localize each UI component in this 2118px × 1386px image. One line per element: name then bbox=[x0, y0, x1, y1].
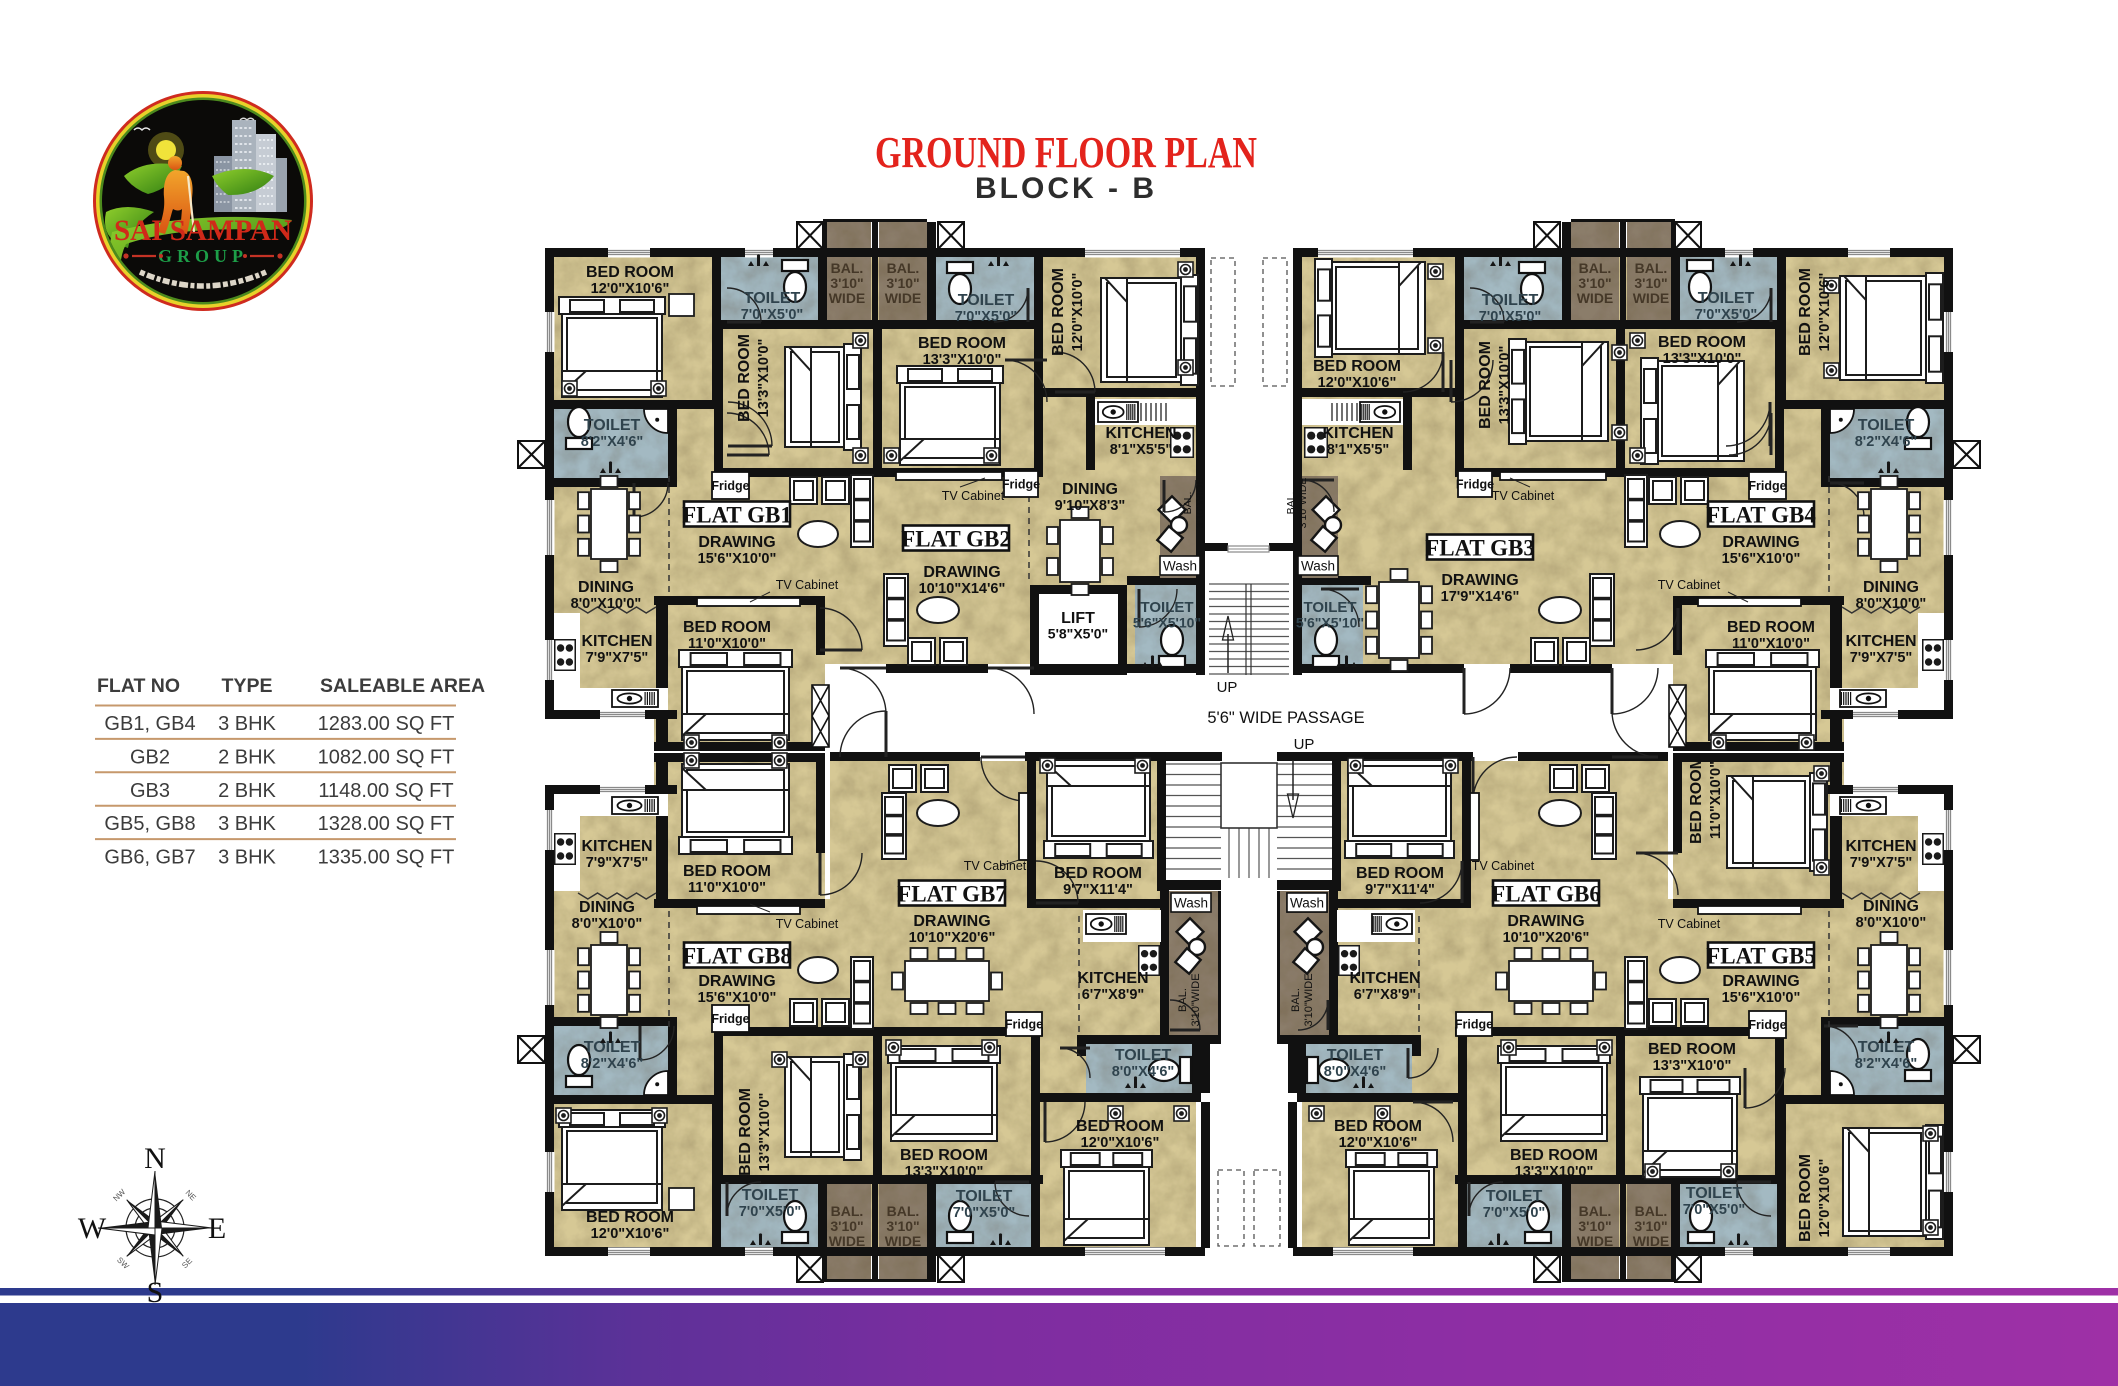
svg-text:S: S bbox=[147, 1276, 164, 1309]
svg-text:BAL.: BAL. bbox=[1579, 260, 1612, 276]
svg-text:7'0"X5'0": 7'0"X5'0" bbox=[741, 307, 804, 323]
svg-text:3'10": 3'10" bbox=[1634, 275, 1667, 291]
svg-text:TV Cabinet: TV Cabinet bbox=[776, 578, 839, 592]
svg-text:BAL.: BAL. bbox=[831, 260, 864, 276]
svg-text:11'0"X10'0": 11'0"X10'0" bbox=[688, 636, 766, 652]
svg-text:TOILET: TOILET bbox=[744, 290, 801, 307]
svg-text:10'10"X20'6": 10'10"X20'6" bbox=[1503, 930, 1590, 946]
svg-text:WIDE: WIDE bbox=[1633, 1233, 1670, 1249]
svg-text:8'0"X4'6": 8'0"X4'6" bbox=[1112, 1064, 1175, 1080]
svg-text:Fridge: Fridge bbox=[1002, 478, 1040, 492]
svg-text:13'3"X10'0": 13'3"X10'0" bbox=[1663, 351, 1742, 367]
svg-text:3'10": 3'10" bbox=[830, 275, 863, 291]
svg-text:WIDE: WIDE bbox=[885, 1233, 922, 1249]
svg-text:TOILET: TOILET bbox=[1858, 1039, 1915, 1056]
svg-text:WIDE: WIDE bbox=[1577, 290, 1614, 306]
svg-text:3 BHK: 3 BHK bbox=[218, 847, 276, 869]
svg-text:7'0"X5'0": 7'0"X5'0" bbox=[1695, 307, 1758, 323]
svg-text:6'7"X8'9": 6'7"X8'9" bbox=[1082, 987, 1145, 1003]
svg-text:W: W bbox=[78, 1212, 107, 1245]
svg-text:5'6"X5'10": 5'6"X5'10" bbox=[1296, 615, 1364, 631]
svg-text:5'6" WIDE PASSAGE: 5'6" WIDE PASSAGE bbox=[1207, 709, 1364, 727]
svg-text:KITCHEN: KITCHEN bbox=[1845, 633, 1916, 650]
svg-text:5'8"X5'0": 5'8"X5'0" bbox=[1048, 626, 1108, 642]
svg-text:13'3"X10'0": 13'3"X10'0" bbox=[1497, 346, 1513, 425]
svg-text:17'9"X14'6": 17'9"X14'6" bbox=[1441, 589, 1520, 605]
svg-text:TV Cabinet: TV Cabinet bbox=[1472, 859, 1535, 873]
svg-text:BED ROOM: BED ROOM bbox=[736, 334, 753, 422]
svg-text:8'0"X10'0": 8'0"X10'0" bbox=[1856, 596, 1927, 612]
svg-text:BED ROOM: BED ROOM bbox=[1658, 334, 1746, 351]
svg-text:WIDE: WIDE bbox=[885, 290, 922, 306]
svg-text:8'1"X5'5": 8'1"X5'5" bbox=[1327, 442, 1390, 458]
svg-text:2 BHK: 2 BHK bbox=[218, 746, 276, 768]
svg-text:7'9"X7'5": 7'9"X7'5" bbox=[1850, 650, 1913, 666]
svg-text:7'9"X7'5": 7'9"X7'5" bbox=[1850, 855, 1913, 871]
svg-text:10'10"X14'6": 10'10"X14'6" bbox=[919, 581, 1006, 597]
svg-text:DINING: DINING bbox=[579, 899, 635, 916]
svg-text:GROUP: GROUP bbox=[158, 246, 248, 266]
svg-text:11'0"X10'0": 11'0"X10'0" bbox=[1708, 761, 1724, 839]
svg-text:BED ROOM: BED ROOM bbox=[683, 863, 771, 880]
svg-text:3'10": 3'10" bbox=[830, 1218, 863, 1234]
svg-text:TV Cabinet: TV Cabinet bbox=[1658, 578, 1721, 592]
svg-text:3'10"WIDE: 3'10"WIDE bbox=[1297, 478, 1309, 529]
svg-text:7'0"X5'0": 7'0"X5'0" bbox=[1683, 1202, 1746, 1218]
svg-text:2 BHK: 2 BHK bbox=[218, 780, 276, 802]
svg-text:8'0"X10'0": 8'0"X10'0" bbox=[1856, 915, 1927, 931]
svg-text:GB3: GB3 bbox=[130, 780, 170, 802]
svg-text:8'0"X10'0": 8'0"X10'0" bbox=[572, 916, 643, 932]
svg-text:TOILET: TOILET bbox=[1482, 292, 1539, 309]
svg-text:TOILET: TOILET bbox=[1303, 599, 1356, 616]
svg-text:FLAT GB4: FLAT GB4 bbox=[1706, 503, 1816, 528]
svg-text:7'9"X7'5": 7'9"X7'5" bbox=[586, 855, 649, 871]
svg-text:FLAT GB2: FLAT GB2 bbox=[901, 527, 1011, 552]
svg-text:KITCHEN: KITCHEN bbox=[1845, 838, 1916, 855]
svg-text:DINING: DINING bbox=[1062, 481, 1118, 498]
svg-text:GB5, GB8: GB5, GB8 bbox=[104, 813, 195, 835]
svg-text:10'10"X20'6": 10'10"X20'6" bbox=[909, 930, 996, 946]
svg-text:3'10"WIDE: 3'10"WIDE bbox=[1194, 478, 1206, 529]
svg-text:7'0"X5'0": 7'0"X5'0" bbox=[1483, 1205, 1546, 1221]
svg-text:BED ROOM: BED ROOM bbox=[586, 264, 674, 281]
svg-text:5'6"X5'10": 5'6"X5'10" bbox=[1133, 615, 1201, 631]
svg-text:8'0"X4'6": 8'0"X4'6" bbox=[1324, 1064, 1387, 1080]
svg-text:DRAWING: DRAWING bbox=[913, 913, 990, 930]
svg-text:KITCHEN: KITCHEN bbox=[1105, 425, 1176, 442]
svg-text:12'0"X10'6": 12'0"X10'6" bbox=[591, 1226, 670, 1242]
svg-text:15'6"X10'0": 15'6"X10'0" bbox=[1722, 990, 1801, 1006]
svg-text:DRAWING: DRAWING bbox=[923, 564, 1000, 581]
svg-text:BED ROOM: BED ROOM bbox=[1313, 358, 1401, 375]
svg-text:SALEABLE AREA: SALEABLE AREA bbox=[320, 675, 485, 697]
svg-text:BED ROOM: BED ROOM bbox=[918, 335, 1006, 352]
svg-text:DRAWING: DRAWING bbox=[698, 534, 775, 551]
svg-text:WIDE: WIDE bbox=[829, 1233, 866, 1249]
svg-text:Fridge: Fridge bbox=[1456, 478, 1494, 492]
svg-text:LIFT: LIFT bbox=[1061, 610, 1095, 627]
svg-text:FLAT GB3: FLAT GB3 bbox=[1425, 536, 1535, 561]
svg-text:TV Cabinet: TV Cabinet bbox=[942, 489, 1005, 503]
svg-text:TOILET: TOILET bbox=[584, 417, 641, 434]
svg-text:7'9"X7'5": 7'9"X7'5" bbox=[586, 650, 649, 666]
svg-text:FLAT GB6: FLAT GB6 bbox=[1491, 882, 1601, 907]
svg-text:FLAT NO: FLAT NO bbox=[97, 675, 180, 697]
svg-text:9'7"X11'4": 9'7"X11'4" bbox=[1365, 882, 1435, 898]
svg-text:3'10"WIDE: 3'10"WIDE bbox=[1303, 973, 1315, 1026]
svg-text:12'0"X10'6": 12'0"X10'6" bbox=[1817, 1159, 1833, 1238]
svg-text:Wash: Wash bbox=[1290, 896, 1324, 911]
svg-text:3'10": 3'10" bbox=[1578, 1218, 1611, 1234]
svg-text:GROUND FLOOR PLAN: GROUND FLOOR PLAN bbox=[875, 128, 1257, 177]
svg-text:TV Cabinet: TV Cabinet bbox=[1492, 489, 1555, 503]
svg-text:GB2: GB2 bbox=[130, 746, 170, 768]
svg-text:BED ROOM: BED ROOM bbox=[1727, 619, 1815, 636]
svg-text:TOILET: TOILET bbox=[956, 1188, 1013, 1205]
svg-text:1328.00 SQ FT: 1328.00 SQ FT bbox=[318, 813, 455, 835]
svg-text:BED ROOM: BED ROOM bbox=[1050, 268, 1067, 356]
svg-text:TOILET: TOILET bbox=[1858, 417, 1915, 434]
svg-text:15'6"X10'0": 15'6"X10'0" bbox=[1722, 551, 1801, 567]
svg-text:E: E bbox=[208, 1212, 226, 1245]
svg-text:1082.00 SQ FT: 1082.00 SQ FT bbox=[318, 746, 455, 768]
svg-text:7'0"X5'0": 7'0"X5'0" bbox=[953, 1205, 1016, 1221]
svg-text:TOILET: TOILET bbox=[1327, 1047, 1384, 1064]
svg-text:12'0"X10'0": 12'0"X10'0" bbox=[1070, 273, 1086, 352]
svg-text:FLAT GB1: FLAT GB1 bbox=[682, 503, 792, 528]
svg-text:BED ROOM: BED ROOM bbox=[1054, 865, 1142, 882]
svg-text:GB1, GB4: GB1, GB4 bbox=[104, 713, 195, 735]
svg-text:13'3"X10'0": 13'3"X10'0" bbox=[923, 352, 1002, 368]
svg-text:12'0"X10'6": 12'0"X10'6" bbox=[1817, 273, 1833, 352]
svg-text:3'10"WIDE: 3'10"WIDE bbox=[1190, 973, 1202, 1026]
svg-text:KITCHEN: KITCHEN bbox=[581, 838, 652, 855]
svg-text:6'7"X8'9": 6'7"X8'9" bbox=[1354, 987, 1417, 1003]
svg-text:DINING: DINING bbox=[578, 579, 634, 596]
svg-text:UP: UP bbox=[1294, 736, 1315, 753]
svg-text:BED ROOM: BED ROOM bbox=[1688, 756, 1705, 844]
svg-text:SAI SAMPAN: SAI SAMPAN bbox=[114, 214, 292, 247]
svg-text:9'7"X11'4": 9'7"X11'4" bbox=[1063, 882, 1133, 898]
svg-text:3'10": 3'10" bbox=[1634, 1218, 1667, 1234]
svg-text:TOILET: TOILET bbox=[742, 1187, 799, 1204]
svg-text:BED ROOM: BED ROOM bbox=[1797, 1154, 1814, 1242]
svg-text:TYPE: TYPE bbox=[222, 675, 273, 697]
svg-text:UP: UP bbox=[1217, 679, 1238, 696]
svg-text:3'10": 3'10" bbox=[886, 1218, 919, 1234]
svg-text:BAL.: BAL. bbox=[1635, 1203, 1668, 1219]
svg-text:3 BHK: 3 BHK bbox=[218, 713, 276, 735]
svg-text:DRAWING: DRAWING bbox=[1722, 973, 1799, 990]
svg-text:WIDE: WIDE bbox=[1577, 1233, 1614, 1249]
svg-text:BAL.: BAL. bbox=[1177, 988, 1189, 1012]
svg-text:7'0"X5'0": 7'0"X5'0" bbox=[739, 1204, 802, 1220]
svg-text:TOILET: TOILET bbox=[1698, 290, 1755, 307]
svg-text:Wash: Wash bbox=[1301, 559, 1335, 574]
svg-text:15'6"X10'0": 15'6"X10'0" bbox=[698, 990, 777, 1006]
svg-text:13'3"X10'0": 13'3"X10'0" bbox=[756, 339, 772, 418]
svg-text:BED ROOM: BED ROOM bbox=[586, 1209, 674, 1226]
svg-text:Fridge: Fridge bbox=[1005, 1018, 1043, 1032]
svg-text:TOILET: TOILET bbox=[1686, 1185, 1743, 1202]
svg-text:TOILET: TOILET bbox=[584, 1039, 641, 1056]
svg-text:1283.00 SQ FT: 1283.00 SQ FT bbox=[318, 713, 455, 735]
svg-text:Fridge: Fridge bbox=[1455, 1018, 1493, 1032]
svg-text:KITCHEN: KITCHEN bbox=[581, 633, 652, 650]
svg-text:Wash: Wash bbox=[1174, 896, 1208, 911]
svg-text:BED ROOM: BED ROOM bbox=[1648, 1041, 1736, 1058]
svg-text:GB6, GB7: GB6, GB7 bbox=[104, 847, 195, 869]
svg-text:TV Cabinet: TV Cabinet bbox=[1658, 917, 1721, 931]
svg-text:Fridge: Fridge bbox=[711, 479, 749, 493]
svg-text:WIDE: WIDE bbox=[1633, 290, 1670, 306]
svg-text:BED ROOM: BED ROOM bbox=[1076, 1118, 1164, 1135]
svg-text:TOILET: TOILET bbox=[958, 292, 1015, 309]
svg-text:13'3"X10'0": 13'3"X10'0" bbox=[1515, 1164, 1594, 1180]
svg-text:FLAT GB8: FLAT GB8 bbox=[682, 944, 792, 969]
svg-text:FLAT GB5: FLAT GB5 bbox=[1706, 944, 1816, 969]
svg-text:TV Cabinet: TV Cabinet bbox=[776, 917, 839, 931]
svg-text:15'6"X10'0": 15'6"X10'0" bbox=[698, 551, 777, 567]
svg-text:DRAWING: DRAWING bbox=[1722, 534, 1799, 551]
svg-text:8'2"X4'6": 8'2"X4'6" bbox=[581, 1056, 644, 1072]
svg-text:KITCHEN: KITCHEN bbox=[1322, 425, 1393, 442]
svg-text:11'0"X10'0": 11'0"X10'0" bbox=[1732, 636, 1810, 652]
svg-text:BLOCK - B: BLOCK - B bbox=[975, 172, 1157, 205]
svg-text:BED ROOM: BED ROOM bbox=[1797, 268, 1814, 356]
svg-text:BAL.: BAL. bbox=[1635, 260, 1668, 276]
svg-text:1148.00 SQ FT: 1148.00 SQ FT bbox=[318, 780, 453, 802]
svg-text:13'3"X10'0": 13'3"X10'0" bbox=[905, 1164, 984, 1180]
svg-text:BAL.: BAL. bbox=[1290, 988, 1302, 1012]
svg-text:BED ROOM: BED ROOM bbox=[1356, 865, 1444, 882]
svg-text:DRAWING: DRAWING bbox=[1441, 572, 1518, 589]
svg-text:BAL.: BAL. bbox=[1285, 492, 1297, 515]
svg-text:BED ROOM: BED ROOM bbox=[1510, 1147, 1598, 1164]
svg-text:3'10": 3'10" bbox=[886, 275, 919, 291]
svg-text:N: N bbox=[144, 1142, 166, 1175]
svg-text:7'0"X5'0": 7'0"X5'0" bbox=[1479, 309, 1542, 325]
svg-text:BAL.: BAL. bbox=[831, 1203, 864, 1219]
svg-text:Wash: Wash bbox=[1163, 559, 1197, 574]
svg-text:DRAWING: DRAWING bbox=[698, 973, 775, 990]
svg-text:KITCHEN: KITCHEN bbox=[1077, 970, 1148, 987]
svg-text:1335.00 SQ FT: 1335.00 SQ FT bbox=[318, 847, 455, 869]
svg-text:Fridge: Fridge bbox=[711, 1012, 749, 1026]
svg-text:12'0"X10'6": 12'0"X10'6" bbox=[1318, 375, 1397, 391]
svg-text:11'0"X10'0": 11'0"X10'0" bbox=[688, 880, 766, 896]
svg-text:12'0"X10'6": 12'0"X10'6" bbox=[1339, 1135, 1418, 1151]
svg-text:BED ROOM: BED ROOM bbox=[737, 1088, 754, 1176]
svg-text:DINING: DINING bbox=[1863, 579, 1919, 596]
svg-text:TOILET: TOILET bbox=[1115, 1047, 1172, 1064]
svg-text:BAL.: BAL. bbox=[887, 260, 920, 276]
svg-text:12'0"X10'6": 12'0"X10'6" bbox=[591, 281, 670, 297]
svg-text:BAL.: BAL. bbox=[887, 1203, 920, 1219]
svg-text:Fridge: Fridge bbox=[1748, 1018, 1786, 1032]
svg-text:BAL.: BAL. bbox=[1579, 1203, 1612, 1219]
svg-text:9'10"X8'3": 9'10"X8'3" bbox=[1055, 498, 1126, 514]
svg-text:DINING: DINING bbox=[1863, 898, 1919, 915]
svg-text:8'0"X10'0": 8'0"X10'0" bbox=[571, 596, 642, 612]
svg-text:BED ROOM: BED ROOM bbox=[1334, 1118, 1422, 1135]
svg-text:8'2"X4'6": 8'2"X4'6" bbox=[581, 434, 644, 450]
svg-text:12'0"X10'6": 12'0"X10'6" bbox=[1081, 1135, 1160, 1151]
svg-text:BED ROOM: BED ROOM bbox=[1477, 341, 1494, 429]
svg-text:TV Cabinet: TV Cabinet bbox=[964, 859, 1027, 873]
svg-text:WIDE: WIDE bbox=[829, 290, 866, 306]
svg-text:13'3"X10'0": 13'3"X10'0" bbox=[1653, 1058, 1732, 1074]
svg-text:8'2"X4'6": 8'2"X4'6" bbox=[1855, 434, 1918, 450]
svg-text:BAL.: BAL. bbox=[1182, 492, 1194, 515]
svg-text:8'2"X4'6": 8'2"X4'6" bbox=[1855, 1056, 1918, 1072]
svg-text:Fridge: Fridge bbox=[1748, 479, 1786, 493]
svg-text:7'0"X5'0": 7'0"X5'0" bbox=[955, 309, 1018, 325]
svg-text:TOILET: TOILET bbox=[1486, 1188, 1543, 1205]
svg-text:TOILET: TOILET bbox=[1140, 599, 1193, 616]
svg-text:BED ROOM: BED ROOM bbox=[683, 619, 771, 636]
svg-text:KITCHEN: KITCHEN bbox=[1349, 970, 1420, 987]
svg-text:8'1"X5'5": 8'1"X5'5" bbox=[1110, 442, 1173, 458]
svg-text:3 BHK: 3 BHK bbox=[218, 813, 276, 835]
svg-text:13'3"X10'0": 13'3"X10'0" bbox=[757, 1093, 773, 1172]
svg-text:3'10": 3'10" bbox=[1578, 275, 1611, 291]
svg-text:FLAT GB7: FLAT GB7 bbox=[897, 882, 1007, 907]
svg-text:DRAWING: DRAWING bbox=[1507, 913, 1584, 930]
svg-text:BED ROOM: BED ROOM bbox=[900, 1147, 988, 1164]
